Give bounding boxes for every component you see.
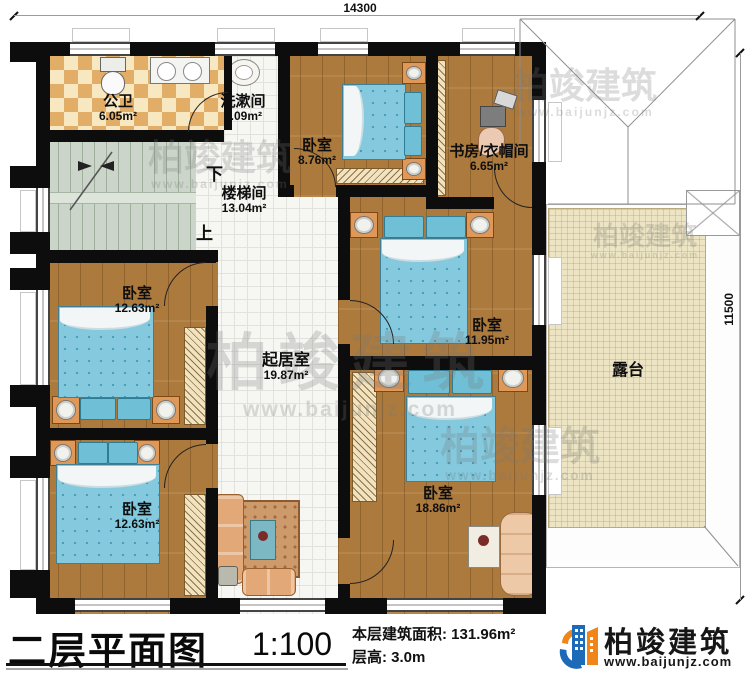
window <box>532 255 546 325</box>
pillow <box>426 216 466 238</box>
pillow <box>404 126 422 156</box>
wall-segment <box>426 197 494 209</box>
room-label-living: 起居室19.87m² <box>246 352 326 382</box>
window-sill <box>548 427 562 495</box>
wardrobe <box>184 327 206 425</box>
dimension-top: 14300 <box>330 1 390 15</box>
wall-segment <box>503 598 546 614</box>
wall-segment <box>338 370 350 538</box>
toilet-bowl <box>101 71 125 95</box>
wall-segment <box>338 197 350 300</box>
window-sill <box>20 190 36 232</box>
company-url: www.baijunjz.com <box>604 654 732 669</box>
window <box>387 598 503 612</box>
page-title: 二层平面图 <box>8 620 208 675</box>
window <box>75 598 170 612</box>
coffee-table <box>250 520 276 560</box>
washroom-sink <box>228 59 260 86</box>
room-label-bedroom-mid-left: 卧室12.63m² <box>99 286 175 315</box>
window <box>240 598 325 612</box>
nightstand <box>52 396 80 424</box>
pillow <box>117 398 151 420</box>
pillow <box>108 442 138 464</box>
scale-text: 1:100 <box>252 626 332 663</box>
terrace-column-marker <box>686 190 740 236</box>
pillow <box>408 370 450 394</box>
room-label-study: 书房/衣帽间6.65m² <box>429 144 549 173</box>
window <box>460 42 515 56</box>
wall-segment <box>532 325 546 425</box>
dimension-right: 11500 <box>722 293 736 326</box>
wardrobe <box>184 494 206 596</box>
window-sill <box>462 28 515 42</box>
wall-segment <box>36 428 218 440</box>
toilet-tank <box>100 57 126 72</box>
window <box>36 188 50 232</box>
wall-segment <box>325 598 387 614</box>
window-sill <box>20 480 36 570</box>
window-sill <box>548 257 562 325</box>
room-label-terrace: 露台 <box>588 362 668 379</box>
window-sill <box>320 28 368 42</box>
floor-info: 本层建筑面积: 131.96m² 层高: 3.0m <box>352 623 515 670</box>
wall-segment <box>206 306 218 430</box>
window-sill <box>72 28 130 42</box>
wall-pilaster <box>10 232 38 254</box>
wall-segment <box>338 344 350 356</box>
floor-height-text: 层高: 3.0m <box>352 646 515 669</box>
wall-segment <box>130 42 215 56</box>
nightstand <box>50 440 76 466</box>
small-desk <box>468 526 500 568</box>
wall-pilaster <box>10 42 38 62</box>
stair-up-label: 上 <box>196 219 213 244</box>
floor-plan: 14300 11500 柏竣建筑 www.baijunjz.com 柏竣建筑 w… <box>0 0 750 679</box>
wall-segment <box>338 584 350 614</box>
pillow <box>384 216 424 238</box>
window-sill <box>548 102 562 162</box>
nightstand <box>402 62 426 84</box>
wall-segment <box>336 185 438 197</box>
window <box>36 290 50 385</box>
wall-segment <box>36 598 75 614</box>
wall-segment <box>206 488 218 598</box>
wall-segment <box>36 42 50 188</box>
wall-segment <box>368 42 460 56</box>
title-underline <box>6 663 346 666</box>
floor-area-text: 本层建筑面积: 131.96m² <box>352 623 515 646</box>
nightstand <box>350 212 378 238</box>
pillow <box>404 92 422 124</box>
nightstand <box>402 158 426 180</box>
room-label-washroom: 洗漱间2.09m² <box>204 94 282 123</box>
wall-segment <box>206 250 218 262</box>
wall-segment <box>426 56 438 209</box>
company-logo-icon <box>552 619 602 675</box>
double-sink <box>150 57 210 84</box>
nightstand <box>466 212 494 238</box>
desk-monitor <box>480 106 506 127</box>
title-underline-2 <box>6 668 348 670</box>
wall-pilaster <box>10 166 38 188</box>
window <box>215 42 275 56</box>
room-label-bedroom-bottom-left: 卧室12.63m² <box>99 502 175 531</box>
window-sill <box>20 292 36 385</box>
wall-segment <box>532 162 546 255</box>
pillow <box>78 442 108 464</box>
nightstand <box>152 396 180 424</box>
stair-landing <box>50 192 196 204</box>
room-label-bedroom-mid-right: 卧室11.95m² <box>447 318 527 347</box>
dimension-line-top <box>14 15 700 16</box>
wall-pilaster <box>10 385 38 407</box>
wall-segment <box>532 42 546 100</box>
wall-segment <box>338 356 546 370</box>
title-bar: 二层平面图 1:100 本层建筑面积: 131.96m² 层高: 3.0m 柏竣… <box>0 618 750 679</box>
window <box>36 478 50 570</box>
wall-segment <box>36 250 216 263</box>
room-label-stairwell: 楼梯间13.04m² <box>202 186 286 215</box>
stair-down-label: 下 <box>206 160 223 185</box>
window <box>70 42 130 56</box>
pillow <box>452 370 492 394</box>
window <box>532 425 546 495</box>
dimension-line-right <box>740 53 741 600</box>
wall-pilaster <box>10 570 38 598</box>
wall-segment <box>532 495 546 614</box>
wall-segment <box>275 42 318 56</box>
wall-pilaster <box>10 268 38 290</box>
wall-segment <box>170 598 240 614</box>
room-label-bedroom-top: 卧室8.76m² <box>279 138 355 167</box>
wall-pilaster <box>10 456 38 478</box>
sofa <box>242 568 296 596</box>
side-table <box>218 566 238 586</box>
room-label-bathroom: 公卫6.05m² <box>68 94 168 123</box>
room-label-bedroom-bottom-right: 卧室18.86m² <box>398 486 478 515</box>
pillow <box>80 398 116 420</box>
window <box>318 42 368 56</box>
window-sill <box>217 28 275 42</box>
